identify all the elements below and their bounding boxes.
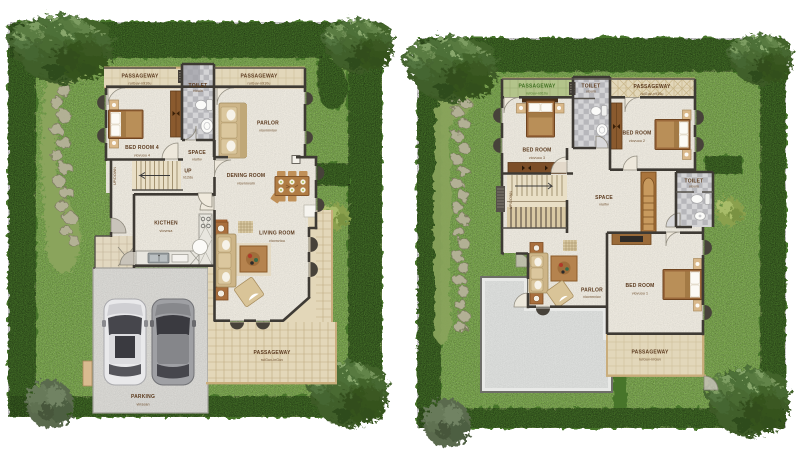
svg-text:ruiGuv-n910u: ruiGuv-n910u (248, 82, 271, 86)
svg-text:LIVING ROOM: LIVING ROOM (259, 231, 295, 237)
svg-text:ruiGuv-inGuv: ruiGuv-inGuv (639, 358, 661, 362)
svg-text:ruiGuv-inGuv: ruiGuv-inGuv (261, 358, 283, 362)
svg-text:viovnsa: viovnsa (160, 229, 173, 233)
svg-text:ruiGuv-n910u: ruiGuv-n910u (129, 82, 152, 86)
svg-text:UP/DOWN: UP/DOWN (509, 191, 513, 209)
svg-text:PASSAGEWAY: PASSAGEWAY (121, 74, 158, 80)
svg-text:viovnviou: viovnviou (269, 239, 285, 243)
svg-text:KICTHEN: KICTHEN (154, 221, 178, 227)
svg-text:PASSAGEWAY: PASSAGEWAY (631, 350, 668, 356)
svg-text:viovuou 3: viovuou 3 (529, 156, 545, 160)
svg-text:PARLOR: PARLOR (257, 121, 279, 127)
svg-text:viovuou 2: viovuou 2 (629, 139, 645, 143)
svg-text:ruiGuv-n910u: ruiGuv-n910u (641, 92, 664, 96)
svg-text:PARLOR: PARLOR (581, 288, 603, 294)
svg-text:PASSAGEWAY: PASSAGEWAY (240, 74, 277, 80)
svg-text:viulhv: viulhv (599, 203, 609, 207)
svg-text:DENING ROOM: DENING ROOM (227, 173, 266, 179)
svg-text:BED ROOM: BED ROOM (622, 131, 651, 137)
svg-text:BED ROOM: BED ROOM (522, 148, 551, 154)
svg-text:ruiGuv-n910u: ruiGuv-n910u (526, 92, 548, 96)
svg-text:PASSAGEWAY: PASSAGEWAY (633, 84, 670, 90)
svg-text:viovnnvoin: viovnnvoin (237, 182, 255, 186)
svg-text:viulhv: viulhv (192, 158, 202, 162)
svg-text:BED ROOM 4: BED ROOM 4 (125, 145, 159, 151)
svg-text:SPACE: SPACE (188, 150, 206, 156)
svg-text:viouin: viouin (689, 185, 699, 189)
svg-text:viovnnviov: viovnnviov (583, 295, 601, 299)
svg-text:PASSAGEWAY: PASSAGEWAY (518, 84, 555, 90)
svg-text:vinsoan: vinsoan (136, 403, 149, 407)
svg-text:PARKING: PARKING (131, 394, 155, 400)
svg-text:UP/DOWN: UP/DOWN (113, 167, 117, 185)
svg-text:PASSAGEWAY: PASSAGEWAY (253, 350, 290, 356)
svg-text:n12du: n12du (183, 176, 194, 180)
svg-text:viouin: viouin (193, 89, 203, 93)
svg-text:viouin: viouin (586, 90, 596, 94)
svg-text:viovuou 1: viovuou 1 (632, 292, 648, 296)
svg-text:SPACE: SPACE (595, 195, 613, 201)
svg-text:BED ROOM: BED ROOM (625, 283, 654, 289)
svg-text:viovnnviov: viovnnviov (259, 129, 277, 133)
svg-text:UP: UP (184, 169, 192, 175)
svg-text:viovuou 4: viovuou 4 (134, 154, 150, 158)
